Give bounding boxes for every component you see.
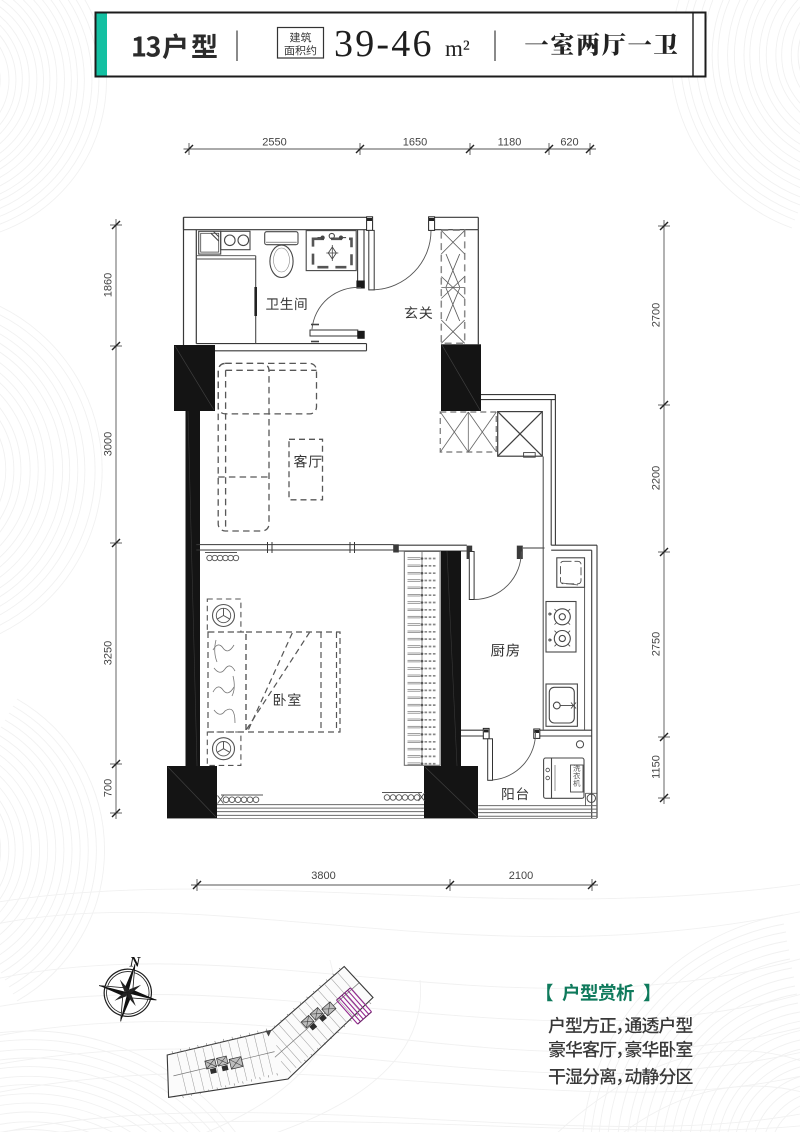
svg-text:700: 700 [103,779,115,797]
svg-text:2550: 2550 [262,137,286,149]
svg-text:620: 620 [560,137,578,149]
svg-text:39-46: 39-46 [334,23,434,65]
svg-text:1150: 1150 [651,755,663,779]
svg-text:2700: 2700 [651,303,663,327]
svg-text:N: N [129,955,142,971]
svg-text:2750: 2750 [651,632,663,656]
svg-text:1860: 1860 [103,273,115,297]
svg-text:3800: 3800 [311,870,335,882]
svg-text:3000: 3000 [103,432,115,456]
svg-text:3250: 3250 [103,641,115,665]
svg-text:2200: 2200 [651,466,663,490]
svg-text:m²: m² [445,36,470,61]
svg-text:1180: 1180 [498,137,522,149]
svg-text:2100: 2100 [509,870,533,882]
svg-text:1650: 1650 [403,137,427,149]
